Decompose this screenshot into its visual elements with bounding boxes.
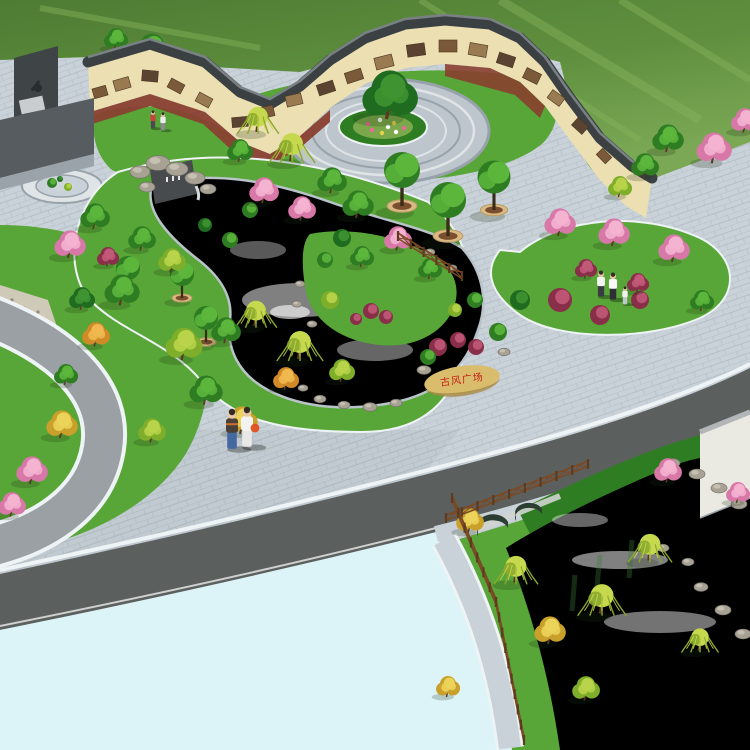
rock: [298, 385, 308, 391]
rock: [166, 162, 188, 176]
rock: [417, 366, 431, 375]
rock: [363, 403, 377, 412]
rock: [689, 469, 705, 479]
rock: [715, 605, 731, 615]
rock: [295, 281, 305, 287]
bush-darkgreen: [333, 229, 351, 247]
landscape-rendering: 古风广场: [0, 0, 750, 750]
bush-red: [548, 288, 572, 312]
bush-lime: [448, 303, 462, 317]
rock: [498, 348, 510, 355]
mural-panel: [406, 43, 425, 57]
bush-green: [489, 323, 507, 341]
bush-green: [47, 178, 57, 188]
flower: [370, 128, 374, 132]
bush-green: [467, 292, 483, 308]
rock: [307, 321, 317, 327]
bush-green: [420, 349, 436, 365]
rock: [694, 583, 708, 592]
rock: [711, 483, 727, 493]
rock: [338, 401, 350, 408]
mural-panel: [142, 70, 159, 82]
flower: [380, 131, 384, 135]
sign-text-mark: [172, 176, 174, 181]
scene-canvas: 古风广场: [0, 0, 750, 750]
bush-lime: [321, 291, 339, 309]
flower: [402, 126, 406, 130]
rock: [314, 395, 326, 402]
bush-lime: [64, 183, 72, 191]
sign-text-mark: [166, 177, 168, 182]
rock: [185, 172, 205, 184]
bush-red: [350, 313, 362, 325]
rock: [682, 558, 694, 565]
bush-darkgreen: [198, 218, 212, 232]
bush-red: [363, 303, 379, 319]
flower: [394, 130, 398, 134]
rock: [292, 301, 302, 307]
rock: [735, 629, 750, 639]
bush-red: [468, 339, 484, 355]
rock: [200, 184, 216, 194]
rock: [390, 399, 402, 406]
rock: [130, 166, 150, 178]
bush-green: [317, 252, 333, 268]
bush-darkgreen: [510, 290, 530, 310]
bush-red: [379, 310, 393, 324]
bush-darkgreen: [57, 176, 63, 182]
bush-red: [450, 332, 466, 348]
mural-panel: [439, 40, 457, 52]
bush-red: [590, 305, 610, 325]
bush-green: [222, 232, 238, 248]
rock: [139, 182, 155, 192]
